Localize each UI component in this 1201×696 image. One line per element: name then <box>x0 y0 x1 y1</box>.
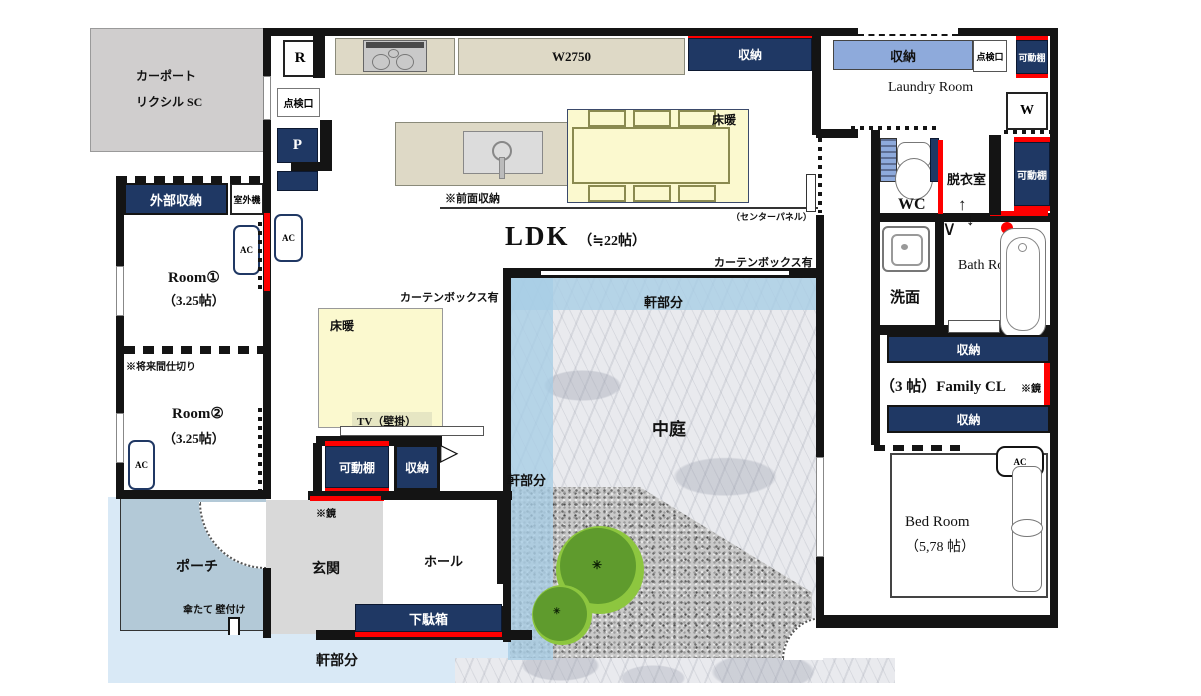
wall-laundry-south <box>816 129 858 138</box>
window-bedroom-west <box>816 457 824 557</box>
room2-opening-dotted <box>258 408 262 493</box>
fcl-shuno-bottom-bar: 収納 <box>887 405 1050 433</box>
wall-datsui-kadodana-divider <box>989 135 1001 215</box>
door-room1-red <box>264 213 270 291</box>
door-genkan-red <box>310 496 384 501</box>
window-ldk-west <box>263 76 271 120</box>
wall-porch-east <box>263 568 271 638</box>
room2-ac-label: AC <box>135 460 148 470</box>
dining-yukadan-label: 床暖 <box>712 111 736 128</box>
fcl-kagami-label: ※鏡 <box>1021 380 1041 395</box>
zenmen-shuno-label: ※前面収納 <box>445 190 500 206</box>
stove-icon <box>363 40 427 72</box>
living-kadodana-box: 可動棚 <box>325 446 389 488</box>
tree-mark-large: ✳ <box>592 558 602 573</box>
datsui-arrow-down: ↓ <box>966 210 975 230</box>
washer-box: W <box>1006 92 1048 130</box>
datsui-label: 脱衣室 <box>947 169 986 188</box>
nakaniwa-label: 中庭 <box>652 415 686 440</box>
tv-wall-left <box>313 443 322 497</box>
room1-label: Room① <box>168 268 220 287</box>
ldk-ac-box: AC <box>274 214 303 262</box>
ldk-ac-label: AC <box>282 233 295 243</box>
chair <box>678 110 716 127</box>
wall-courtyard-left <box>503 268 511 642</box>
kadodana-top-red-b <box>1016 74 1048 78</box>
chair <box>588 185 626 202</box>
kitchen-floor-line <box>440 207 818 209</box>
wall-corridor-east <box>871 130 880 445</box>
hall-label: ホール <box>424 551 463 570</box>
ldk-east-opening-dotted <box>818 138 822 213</box>
getabako-label: 下駄箱 <box>409 609 448 628</box>
laundry-room-label: Laundry Room <box>888 80 973 96</box>
washbasin-icon <box>882 226 930 272</box>
wc-label: WC <box>898 196 926 214</box>
ldk-title: LDK （≒22帖） <box>505 221 646 252</box>
living-shuno-label: 収納 <box>405 459 429 476</box>
chair <box>678 185 716 202</box>
senmen-label: 洗面 <box>890 286 920 307</box>
toilet-bowl <box>895 158 933 200</box>
gaibu-shuno-label: 外部収納 <box>150 190 202 209</box>
bed-icon <box>1012 466 1042 592</box>
laundry-tenkenko-box: 点検口 <box>973 40 1007 72</box>
kasatate-label: 傘たて 壁付け <box>183 601 246 616</box>
fcl-shuno-top-label: 収納 <box>956 341 980 358</box>
counter-w2750: W2750 <box>458 38 685 75</box>
living-yukadan-label: 床暖 <box>330 317 354 334</box>
marble-walkway <box>455 658 895 683</box>
room1-opening-dotted <box>258 222 262 292</box>
noki-bottom-label: 軒部分 <box>316 650 358 670</box>
laundry-tenkenko-label: 点検口 <box>976 50 1003 63</box>
umbrella-hook-icon <box>228 617 240 635</box>
dining-table <box>572 127 730 184</box>
living-shuno-box: 収納 <box>394 444 440 491</box>
pantry-label: P <box>293 137 302 154</box>
room1-ac-box: AC <box>233 225 260 275</box>
floor-plan: ✳ ✳ カーポート リクシル SC W2750 収納 床暖 ※前面収納 （センタ… <box>0 0 1201 696</box>
datsui-door-v: ∨ <box>942 216 957 241</box>
wall-bedroom-south <box>816 615 1058 628</box>
laundry-south-dotted <box>851 126 941 130</box>
curtain-box-label-left: カーテンボックス有 <box>400 289 499 305</box>
fcl-shuno-top-bar: 収納 <box>887 335 1050 363</box>
wall-kitchen-a <box>313 28 325 78</box>
window-ldk-east <box>806 174 816 212</box>
refrigerator-box: R <box>283 40 317 77</box>
kitchen-tenkenko-box: 点検口 <box>277 88 320 117</box>
getabako-box: 下駄箱 <box>355 604 502 632</box>
wall-courtyard-right <box>816 215 824 620</box>
tree-mark-small: ✳ <box>553 606 561 617</box>
noki-left-label: 軒部分 <box>507 470 546 489</box>
door-swing-triangle: ▷ <box>440 438 458 467</box>
ldk-size: （≒22帖） <box>578 234 646 249</box>
porch-label: ポーチ <box>176 556 218 576</box>
tv-shelf <box>340 426 484 436</box>
bedroom-ac-label: AC <box>1014 457 1027 467</box>
wall-rooms-south <box>116 490 271 499</box>
shitsugaiki-box: 室外機 <box>230 183 264 215</box>
getabako-red <box>355 632 502 637</box>
noki-top-label: 軒部分 <box>644 292 683 311</box>
chair <box>633 110 671 127</box>
courtyard-top-glass <box>540 270 790 276</box>
bathtub <box>1000 228 1046 338</box>
room1-size-label: （3.25帖） <box>163 290 225 309</box>
pantry-box: P <box>277 128 318 163</box>
fcl-shuno-bottom-label: 収納 <box>956 411 980 428</box>
gaibu-shuno-box: 外部収納 <box>124 183 228 215</box>
genkan-label: 玄関 <box>312 558 340 578</box>
kadodana-mid-box: 可動棚 <box>1014 142 1050 206</box>
kitchen-tenkenko-label: 点検口 <box>284 95 314 110</box>
kadodana-top-label: 可動棚 <box>1018 51 1045 64</box>
room2-ac-box: AC <box>128 440 155 490</box>
bath-step <box>948 320 1000 333</box>
chair <box>633 185 671 202</box>
bedroom-top-dashed <box>874 445 960 451</box>
w2750-label: W2750 <box>552 49 591 65</box>
faucet-stem <box>499 157 505 179</box>
window-room1-west <box>116 266 124 316</box>
kagami-genkan-label: ※鏡 <box>316 505 336 520</box>
laundry-shuno-label: 収納 <box>890 46 916 65</box>
laundry-window-top <box>858 28 958 36</box>
room2-size-label: （3.25帖） <box>163 428 225 447</box>
pantry-shelf-bar <box>277 171 318 191</box>
kitchen-shuno-box: 収納 <box>688 38 812 71</box>
datsui-door-red <box>938 140 943 214</box>
kitchen-shuno-label: 収納 <box>738 46 762 63</box>
carport: カーポート リクシル SC <box>90 28 265 152</box>
living-kadodana-label: 可動棚 <box>339 459 375 476</box>
kadodana-mid-red-b <box>1014 206 1050 211</box>
window-room2-west <box>116 413 124 463</box>
refrigerator-label: R <box>295 50 306 67</box>
w-south-dotted <box>1004 130 1050 134</box>
wall-laundry-west <box>812 28 821 135</box>
room1-ac-label: AC <box>240 245 253 255</box>
wall-rooms-top-dashed <box>116 176 268 184</box>
shitsugaiki-label: 室外機 <box>233 193 260 206</box>
laundry-shuno-bar: 収納 <box>833 40 973 70</box>
ldk-name: LDK <box>505 221 570 251</box>
washer-label: W <box>1020 103 1034 119</box>
future-partition-line <box>124 346 264 354</box>
kadodana-top-box: 可動棚 <box>1016 40 1048 74</box>
future-partition-label: ※将来間仕切り <box>126 358 196 373</box>
carport-line1: カーポート <box>136 67 196 84</box>
wall-kitchen-c <box>291 162 332 171</box>
chair <box>588 110 626 127</box>
kadodana-mid-label: 可動棚 <box>1017 167 1047 182</box>
bedroom-label: Bed Room <box>905 514 970 531</box>
bedroom-size-label: （5,78 帖） <box>905 536 975 556</box>
carport-line2: リクシル SC <box>136 93 202 110</box>
fcl-door-red <box>1044 363 1050 405</box>
center-panel-label: （センターパネル） <box>731 210 812 223</box>
hall-north-dotted <box>381 496 445 500</box>
family-cl-label: （3 帖）Family CL <box>880 375 1006 396</box>
room2-label: Room② <box>172 404 224 423</box>
